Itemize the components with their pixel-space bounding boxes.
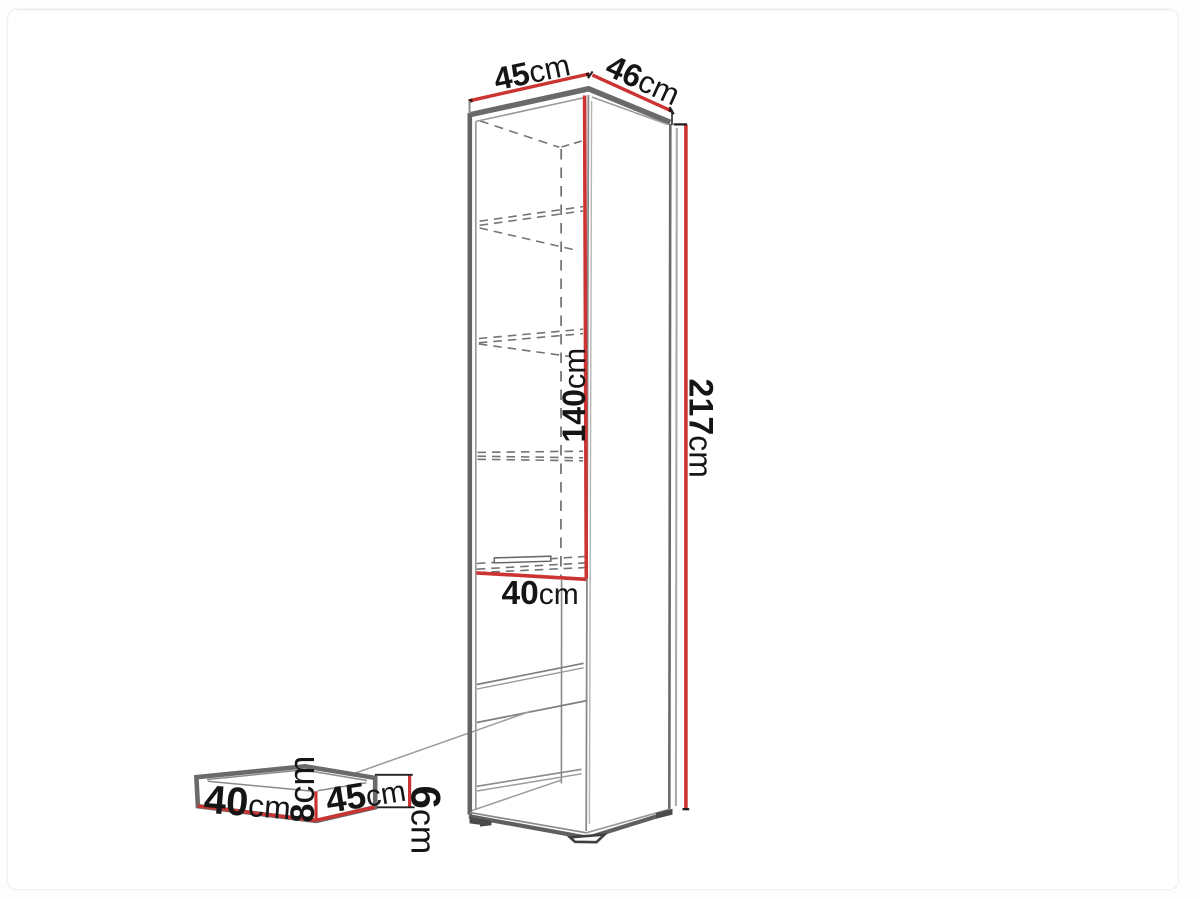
svg-text:8cm: 8cm	[281, 756, 322, 823]
svg-text:217cm: 217cm	[681, 379, 719, 478]
svg-text:6cm: 6cm	[403, 786, 450, 855]
svg-text:140cm: 140cm	[556, 348, 592, 443]
svg-text:40cm: 40cm	[502, 575, 579, 612]
